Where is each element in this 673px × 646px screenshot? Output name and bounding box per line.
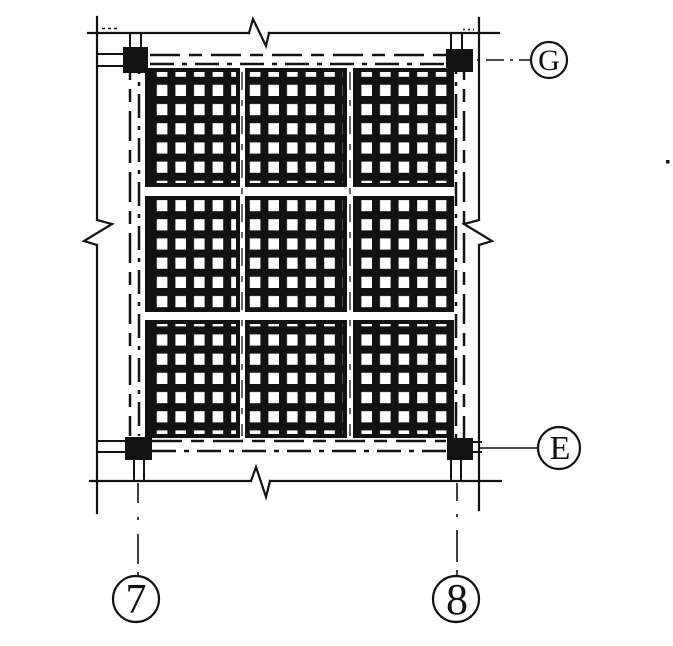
waffle-panel	[247, 198, 345, 310]
waffle-panel-grid	[147, 70, 452, 436]
column-bottom-right	[447, 438, 473, 460]
waffle-panel	[247, 322, 345, 436]
grid-bubble-label: 7	[126, 577, 147, 623]
grid-bubble-G: G	[531, 42, 567, 78]
bottom-break-icon	[251, 467, 270, 497]
column-top-right	[446, 49, 473, 72]
waffle-panel	[147, 322, 238, 436]
grid-bubble-7: 7	[113, 576, 159, 623]
waffle-panel	[147, 198, 238, 310]
waffle-panel	[355, 322, 452, 436]
waffle-panel	[355, 198, 452, 310]
left-break-icon	[84, 220, 112, 245]
waffle-slab-plan-drawing: G E 7 8	[0, 0, 673, 646]
column-bottom-left	[125, 437, 152, 460]
grid-bubble-label: G	[538, 44, 560, 77]
scan-dot	[666, 160, 670, 164]
grid-bubble-label: 8	[446, 575, 468, 624]
waffle-panel	[247, 70, 345, 185]
grid-bubble-E: E	[538, 427, 580, 469]
top-break-icon	[249, 19, 269, 46]
waffle-panel	[355, 70, 452, 185]
grid-bubble-label: E	[550, 430, 571, 467]
structural-plan-canvas: G E 7 8	[0, 0, 673, 646]
column-top-left	[123, 47, 148, 73]
right-break-icon	[464, 220, 492, 245]
waffle-panel	[147, 70, 238, 185]
grid-bubble-8: 8	[433, 575, 479, 624]
